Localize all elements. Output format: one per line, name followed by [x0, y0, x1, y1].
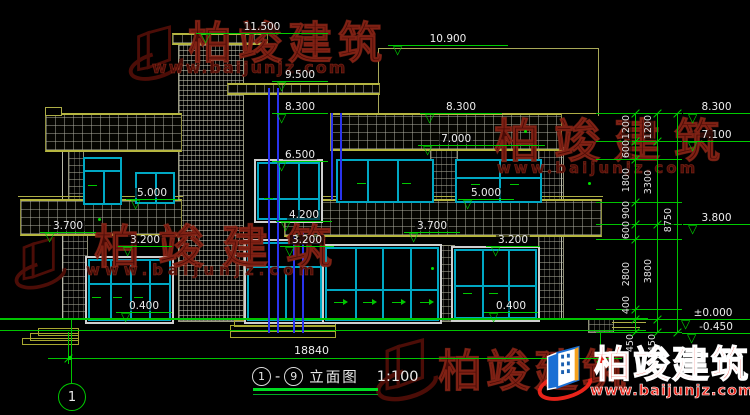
bottom-dim-line — [48, 358, 622, 359]
window-mullion — [110, 261, 112, 319]
dim-value: 600 — [622, 221, 632, 239]
casement-mark — [134, 297, 143, 298]
dim-value: 1200 — [644, 115, 654, 139]
casement-mark — [489, 293, 498, 294]
elevation-marker-3200-left: 3.200 — [118, 246, 172, 247]
dim-extension-line — [596, 141, 682, 142]
dim-value: 3300 — [644, 170, 654, 194]
casement-mark — [510, 184, 519, 185]
elevation-label: 7.100 — [699, 130, 733, 141]
elevation-label: 3.800 — [699, 213, 733, 224]
casement-mark — [463, 293, 472, 294]
casement-arrow — [334, 302, 346, 303]
title-axis-from: 1 — [258, 370, 265, 383]
elevation-label: ±0.000 — [692, 308, 735, 319]
margin-marker-8300: 8.300 — [683, 113, 750, 114]
elevation-marker-8300-right: 8.300 — [420, 113, 502, 114]
title-scale: 1:100 — [377, 369, 419, 385]
window-mullion — [382, 249, 384, 319]
elevation-label: 7.000 — [439, 134, 473, 145]
casement-mark — [92, 297, 101, 298]
window-mullion — [355, 249, 357, 319]
elevation-label: 8.300 — [283, 102, 317, 113]
elevation-marker-4200: 4.200 — [276, 221, 332, 222]
rear-parapet-outline — [378, 48, 599, 116]
dim-chain-line — [677, 113, 678, 333]
slab-9500 — [227, 83, 380, 95]
rain-pipe — [331, 113, 342, 200]
window-rail — [456, 285, 535, 287]
elevation-marker-5000-right: 5.000 — [458, 199, 514, 200]
elevation-label: 5.000 — [469, 188, 503, 199]
point-marker — [431, 267, 434, 270]
title-name: 立面图 — [309, 366, 359, 387]
elevation-label: 10.900 — [428, 34, 469, 45]
margin-marker-7100: 7.100 — [683, 141, 750, 142]
elevation-marker-6500: 6.500 — [272, 161, 328, 162]
casement-mark — [88, 185, 97, 186]
casement-mark — [264, 198, 273, 199]
elevation-label: 3.700 — [51, 221, 85, 232]
elevation-label: 0.400 — [494, 301, 528, 312]
elevation-label: 8.300 — [699, 102, 733, 113]
casement-arrow — [420, 302, 432, 303]
wall-pier-2f-left — [68, 148, 84, 202]
watermark-mid-left — [13, 234, 68, 300]
ground-line — [0, 318, 648, 320]
elevation-marker-10900: 10.900 — [388, 45, 508, 46]
point-marker — [98, 218, 101, 221]
dim-value: 2800 — [622, 262, 632, 286]
title-axis-to: 9 — [290, 370, 297, 383]
elevation-label: 8.300 — [444, 102, 478, 113]
casement-mark — [471, 184, 480, 185]
casement-mark — [402, 183, 411, 184]
elevation-marker-11500: 11.500 — [196, 33, 328, 34]
grid-axis-number: 1 — [68, 390, 76, 405]
window-2f-right-a — [336, 159, 434, 203]
stair-tower-cap-slab — [172, 33, 268, 45]
elevation-label: 4.200 — [287, 210, 321, 221]
elevation-marker-9500: 9.500 — [272, 81, 328, 82]
margin-marker-0450: -0.450 — [682, 333, 750, 334]
title-separator: - — [275, 369, 280, 385]
grid-node-dot — [68, 356, 72, 360]
dim-value: 400 — [622, 296, 632, 314]
ground-line-lower — [0, 330, 646, 331]
elevation-label: 6.500 — [283, 150, 317, 161]
elevation-label: 3.700 — [415, 221, 449, 232]
elevation-label: 3.200 — [496, 235, 530, 246]
point-marker — [588, 182, 591, 185]
window-rail — [327, 289, 437, 291]
drawing-title: 1 - 9 立面图 1:100 — [252, 366, 419, 387]
elevation-marker-3700-right: 3.700 — [404, 232, 460, 233]
dim-extension-line — [596, 332, 682, 333]
dim-value-total: 8750 — [664, 208, 674, 232]
left-roof-band — [45, 113, 182, 152]
casement-mark — [113, 297, 122, 298]
dim-value: 1200 — [622, 115, 632, 139]
elevation-marker-7000: 7.000 — [418, 145, 545, 146]
window-gf-mid-right — [322, 244, 442, 324]
cad-elevation-drawing: 11.500 10.900 9.500 8.300 8.300 7.000 6.… — [0, 0, 750, 415]
grid-axis-line — [71, 320, 72, 383]
elevation-label: 9.500 — [283, 70, 317, 81]
elevation-label: 11.500 — [242, 22, 283, 33]
door-mullion — [285, 268, 287, 319]
watermark-logo-icon — [13, 234, 68, 296]
door-mullion — [103, 170, 105, 203]
dim-value: 1800 — [622, 168, 632, 192]
right-balcony-lip — [281, 196, 603, 197]
elevation-marker-3200-right: 3.200 — [486, 246, 540, 247]
watermark-logo-icon — [127, 22, 185, 88]
terrace-door — [83, 157, 122, 205]
point-marker — [524, 130, 527, 133]
elevation-marker-0400-right: 0.400 — [484, 312, 538, 313]
window-mullion — [367, 161, 369, 201]
grid-axis-bubble: 1 — [58, 383, 86, 411]
dim-extension-line — [596, 159, 682, 160]
window-mullion — [410, 249, 412, 319]
elevation-label: 0.400 — [127, 301, 161, 312]
title-axis-from-bubble: 1 — [252, 367, 271, 386]
dim-extension-line — [596, 319, 682, 320]
porch-slab — [230, 330, 336, 338]
casement-mark — [357, 183, 366, 184]
watermark-site-color: www.baijunjz.com — [590, 384, 750, 399]
elevation-label: 3.200 — [290, 235, 324, 246]
dim-extension-line — [596, 113, 682, 114]
elevation-marker-3200-center: 3.200 — [280, 246, 334, 247]
casement-arrow — [392, 302, 404, 303]
window-rail — [90, 283, 169, 285]
watermark-brand-color: 柏竣建筑 — [594, 346, 750, 383]
dim-extension-line — [596, 202, 682, 203]
casement-arrow — [363, 302, 375, 303]
window-glass-frame — [325, 247, 439, 321]
dim-value: 600 — [622, 140, 632, 158]
overall-width-dim: 18840 — [292, 345, 331, 356]
dim-value: 900 — [622, 201, 632, 219]
elevation-marker-0400-left: 0.400 — [116, 312, 172, 313]
margin-marker-3800: 3.800 — [683, 224, 750, 225]
dim-value: 3800 — [644, 259, 654, 283]
parapet-bottom-line — [560, 113, 599, 114]
elevation-marker-8300-left: 8.300 — [272, 113, 328, 114]
left-roof-lip — [45, 107, 62, 116]
elevation-label: -0.450 — [697, 322, 735, 333]
elevation-marker-3700-left: 3.700 — [40, 232, 96, 233]
title-underline-thick — [253, 388, 378, 391]
title-underline-thin — [253, 394, 378, 395]
elevation-label: 5.000 — [135, 188, 169, 199]
window-mullion — [397, 161, 399, 201]
window-mullion — [482, 251, 484, 317]
window-rail — [457, 177, 540, 179]
wall-pier-2f-right — [430, 147, 458, 201]
elevation-label: 3.200 — [128, 235, 162, 246]
title-axis-to-bubble: 9 — [284, 367, 303, 386]
elevation-marker-5000-left: 5.000 — [126, 199, 178, 200]
watermark-logo-color — [536, 342, 594, 412]
right-steps-line — [612, 322, 646, 323]
dim-extension-line — [596, 309, 682, 310]
dim-extension-line — [596, 239, 682, 240]
